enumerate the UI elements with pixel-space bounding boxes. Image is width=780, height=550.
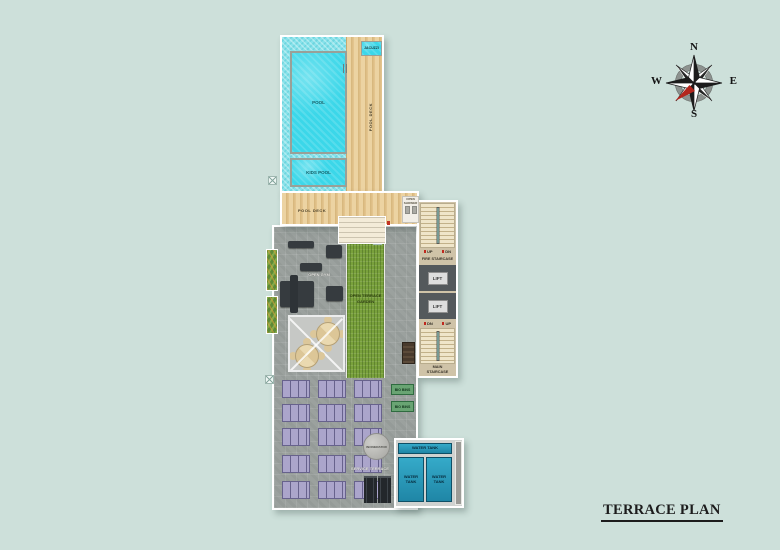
round-table	[295, 344, 319, 368]
water-tank-horizontal: WATER TANK	[398, 443, 452, 454]
planter	[266, 249, 278, 291]
terrace-garden: OPEN TERRACE GARDEN	[346, 238, 385, 378]
gym-bench	[288, 241, 314, 248]
lift-1-label: LIFT	[428, 272, 448, 285]
bio-bin: BIO BINS	[391, 384, 414, 395]
fire-staircase-label: FIRE STAIRCASE	[419, 257, 456, 261]
terrace-plan-page: { "page": { "title": "TERRACE PLAN", "ba…	[0, 0, 780, 550]
down-label: DN	[442, 249, 451, 254]
gym-machine	[300, 263, 322, 271]
pool-area: POOL KIDS POOL JACUZZI POOL DECK	[280, 35, 384, 193]
pergola-seating	[288, 315, 345, 372]
kids-pool: KIDS POOL	[290, 158, 347, 187]
solar-panel-group	[318, 380, 346, 398]
main-staircase-updn: DN UP	[419, 321, 456, 326]
fire-staircase-steps	[420, 203, 455, 248]
water-tank-label: WATER TANK	[402, 475, 420, 485]
round-table	[316, 322, 340, 346]
solar-panel-group	[318, 404, 346, 422]
step-marker	[387, 221, 390, 225]
solar-panel-group	[282, 481, 310, 499]
shower-mat-icon	[405, 206, 410, 214]
fire-staircase-updn: UP DN	[419, 249, 456, 254]
pool-deck-column	[346, 37, 382, 191]
solar-panel-group	[282, 380, 310, 398]
swimming-pool: POOL	[290, 51, 347, 154]
lift-2: LIFT	[419, 293, 456, 319]
shower-mat-icon	[412, 206, 417, 214]
service-bench	[402, 342, 415, 364]
solar-panel-group	[354, 404, 382, 422]
solar-panel-group	[282, 428, 310, 446]
incinerator: INCINERATOR	[363, 433, 390, 460]
gym-multi-station	[280, 281, 314, 307]
service-terrace-label: SERVICE TERRACE	[348, 467, 392, 472]
water-tank-area: WATER TANK WATER TANK WATER TANK	[394, 438, 464, 508]
gym-bike	[326, 286, 343, 301]
open-gym-label: OPEN GYM	[302, 273, 336, 278]
water-tank-label: WATER TANK	[412, 446, 438, 451]
lift-2-label: LIFT	[428, 300, 448, 313]
kids-pool-label: KIDS POOL	[306, 170, 331, 175]
pool-label: POOL	[312, 100, 325, 105]
electrical-panel	[378, 476, 391, 503]
compass-north-label: N	[648, 41, 740, 53]
pool-ladder-icon	[343, 64, 347, 73]
solar-panel-group	[318, 481, 346, 499]
direction-marker-icon	[442, 250, 444, 253]
open-shower: OPEN SHOWER	[402, 196, 419, 223]
solar-panel-group	[282, 455, 310, 473]
solar-panel-row	[282, 380, 382, 398]
lift-1: LIFT	[419, 265, 456, 291]
water-tank-2: WATER TANK	[426, 457, 452, 502]
compass-south-label: S	[648, 108, 740, 120]
compass-west-label: W	[651, 75, 662, 87]
floor-drain-icon	[265, 375, 274, 384]
bio-bin-label: BIO BINS	[395, 405, 411, 409]
pool-deck-bottom-label: POOL DECK	[298, 208, 326, 213]
gym-machine	[326, 245, 342, 258]
garden-label-line2: GARDEN	[347, 300, 384, 305]
jacuzzi-label: JACUZZI	[364, 46, 379, 50]
main-staircase-label-2: STAIRCASE	[419, 370, 456, 374]
up-label: UP	[424, 249, 433, 254]
direction-marker-icon	[424, 322, 426, 325]
bio-bin-label: BIO BINS	[395, 388, 411, 392]
bio-bin: BIO BINS	[391, 401, 414, 412]
pool-deck-vertical-label: POOL DECK	[368, 103, 373, 131]
compass-east-label: E	[730, 75, 737, 87]
solar-panel-group	[282, 404, 310, 422]
solar-panel-group	[354, 380, 382, 398]
planter	[266, 296, 278, 334]
solar-panel-group	[318, 455, 346, 473]
main-staircase-label-1: MAIN	[419, 365, 456, 369]
open-shower-label: OPEN SHOWER	[403, 197, 418, 205]
electrical-panel	[364, 476, 377, 503]
core-column: UP DN FIRE STAIRCASE LIFT LIFT DN UP MAI…	[417, 200, 458, 378]
water-tank-1: WATER TANK	[398, 457, 424, 502]
floor-drain-icon	[268, 176, 277, 185]
deck-steps	[338, 216, 386, 244]
up-label: UP	[442, 321, 451, 326]
main-staircase-steps	[420, 328, 455, 364]
garden-label-line1: OPEN TERRACE	[347, 294, 384, 299]
compass-rose: N E S W	[648, 34, 740, 130]
direction-marker-icon	[424, 250, 426, 253]
jacuzzi: JACUZZI	[361, 41, 382, 56]
down-label: DN	[424, 321, 433, 326]
service-ledge	[455, 441, 462, 505]
incinerator-label: INCINERATOR	[366, 445, 387, 449]
solar-panel-group	[318, 428, 346, 446]
page-title: TERRACE PLAN	[601, 502, 723, 522]
water-tank-label: WATER TANK	[430, 475, 448, 485]
solar-panel-row	[282, 404, 382, 422]
